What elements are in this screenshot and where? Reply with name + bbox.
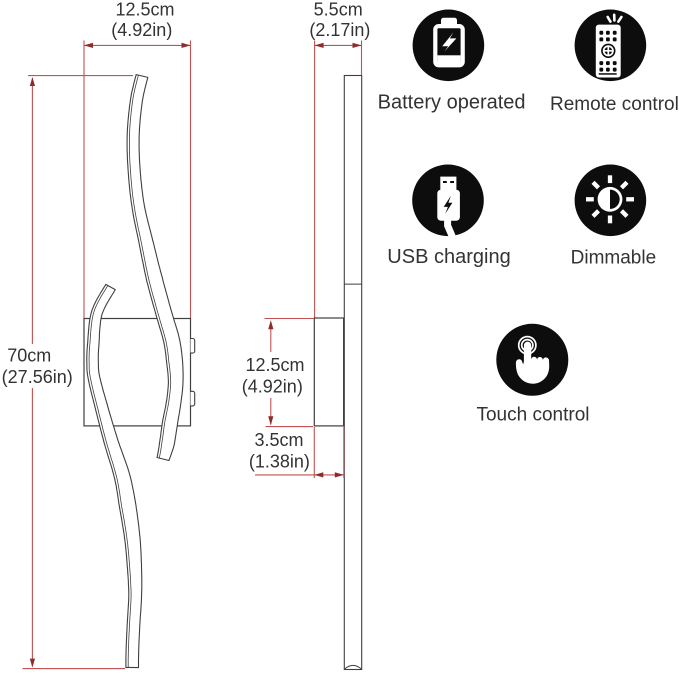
svg-text:Remote control: Remote control: [550, 94, 679, 115]
svg-text:Battery operated: Battery operated: [378, 92, 526, 114]
svg-text:12.5cm: 12.5cm: [115, 0, 174, 19]
svg-text:(4.92in): (4.92in): [242, 376, 303, 396]
svg-text:(4.92in): (4.92in): [111, 20, 172, 40]
svg-text:5.5cm: 5.5cm: [314, 0, 363, 19]
svg-text:12.5cm: 12.5cm: [245, 355, 304, 375]
svg-text:(1.38in): (1.38in): [249, 451, 310, 471]
svg-text:70cm: 70cm: [7, 346, 51, 366]
svg-text:(27.56in): (27.56in): [2, 367, 73, 387]
svg-text:Touch control: Touch control: [476, 404, 589, 425]
svg-text:3.5cm: 3.5cm: [254, 430, 303, 450]
svg-text:(2.17in): (2.17in): [309, 20, 370, 40]
svg-text:Dimmable: Dimmable: [571, 248, 657, 269]
svg-text:USB charging: USB charging: [387, 246, 510, 268]
